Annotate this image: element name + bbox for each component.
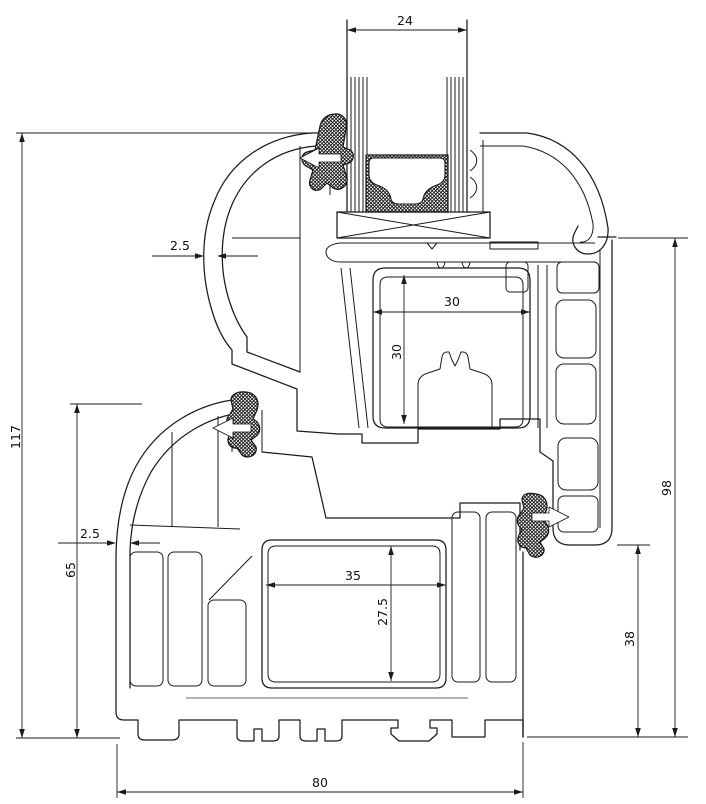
sash-right-leg [553,240,612,545]
frame-chamber-right-1 [452,512,480,682]
dimension-label-chamber-height: 30 [389,344,404,360]
glass-pane-left [351,77,367,212]
frame-profile [116,399,523,741]
frame-main-chamber-outer [262,540,446,688]
dimension-label-overall-height: 117 [8,425,23,449]
dimension-label-sash-wall-thickness: 2.5 [170,238,190,253]
sash-diagonal-web-2 [350,268,368,428]
frame-top-edge [262,452,520,550]
steel-reinforcement-clip [418,352,492,427]
glass-pane-right [447,77,463,212]
dimension-chamber-height: 30 [389,275,407,424]
dimension-label-frame-height: 65 [63,562,78,578]
frame-diagonal-web [209,556,252,600]
shelf-notch-u2 [462,262,470,268]
frame-web-horizontal [130,525,240,529]
window-profile-cross-section: 24 117 65 2.5 [0,0,706,804]
frame-chamber-2 [168,552,202,686]
glazing-bead-lip-1 [470,150,477,171]
glazing-bead-inner [480,146,593,242]
dimension-label-frame-chamber-width: 35 [345,568,361,583]
frame-chamber-1 [130,552,163,686]
dimension-label-rebate-height: 38 [622,631,637,647]
dimension-chamber-width: 30 [373,294,530,315]
sash-inner-contour-left [222,146,316,372]
technical-drawing-canvas: 24 117 65 2.5 [0,0,706,804]
dimension-label-profile-depth: 80 [312,775,328,790]
glazing-gasket-left [302,114,353,190]
frame-outer-contour [116,399,240,692]
shelf-notch-u1 [437,262,445,268]
dimension-label-frame-chamber-height: 27.5 [375,598,390,626]
dimension-glazing-width: 24 [347,13,467,33]
sash-leg-chamber-2 [558,496,598,532]
glazing-bead-outer [480,133,608,254]
sash-leg-chamber-1 [558,438,598,490]
dimension-frame-wall-thickness: 2.5 [58,526,160,546]
glazing-shelf-hook [326,243,340,262]
dimension-label-glazing-width: 24 [397,13,413,28]
frame-chamber-right-2 [486,512,516,682]
dimension-frame-chamber-width: 35 [266,568,446,588]
dimension-rebate-height: 38 [617,545,650,737]
frame-inner-contour [130,412,246,688]
dimension-label-chamber-width: 30 [444,294,460,309]
dimension-label-frame-wall-thickness: 2.5 [80,526,100,541]
dimensions: 24 117 65 2.5 [8,13,688,798]
weather-seal-right [517,493,548,557]
dimension-frame-chamber-height: 27.5 [375,546,394,681]
dimension-profile-depth: 80 [117,742,523,798]
sash-chamber-right-2 [556,364,596,424]
sash-diagonal-web-1 [341,268,359,428]
dimension-sash-height: 98 [527,238,688,737]
spacer-bar [337,212,490,238]
dimension-label-sash-height: 98 [659,480,674,496]
glazing-bead-lip-2 [470,177,477,198]
sash-chamber-small-2 [557,262,599,293]
sash-chamber-right-1 [556,300,596,358]
glazing-unit [337,20,490,238]
shelf-notch-v [427,243,437,249]
frame-main-chamber-inner [268,546,440,682]
frame-chamber-3 [208,600,246,686]
frame-bottom-band [116,692,523,741]
